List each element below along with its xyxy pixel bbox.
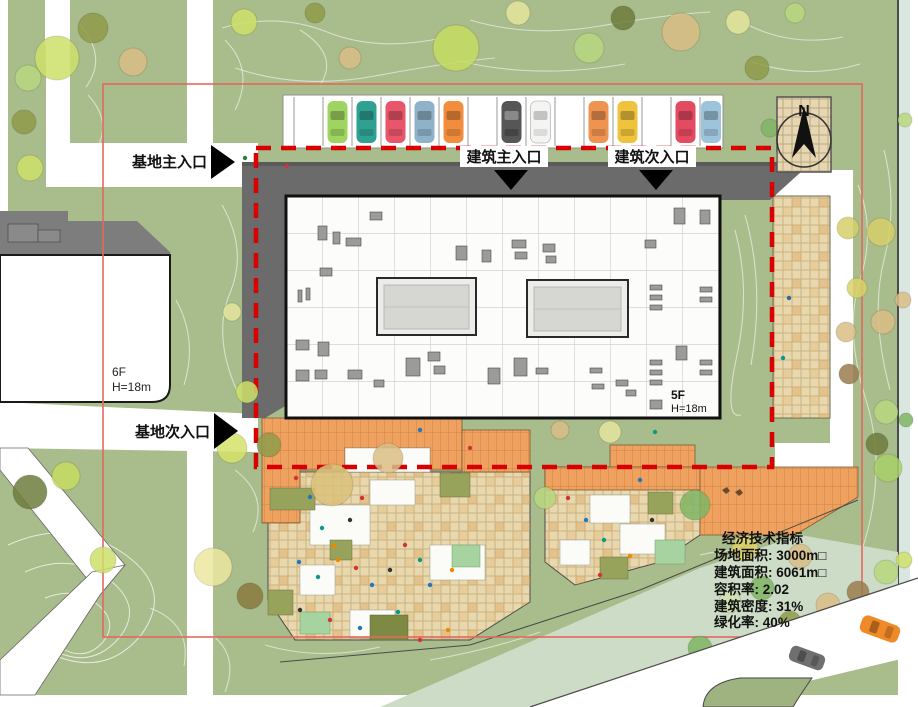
main-building-height: H=18m	[671, 403, 707, 415]
main-building: 5F H=18m	[286, 196, 720, 418]
label-building-secondary-entrance: 建筑次入口	[614, 148, 689, 166]
parked-car	[444, 101, 464, 143]
courtyard-skylight	[527, 280, 628, 337]
indicator-building-area: 建筑面积: 6061m□	[713, 564, 826, 580]
courtyard-skylight	[377, 278, 476, 335]
indicators-title: 经济技术指标	[722, 530, 803, 546]
parked-car	[676, 101, 696, 143]
indicator-green-ratio: 绿化率: 40%	[714, 614, 790, 630]
road-right-vertical	[830, 170, 853, 470]
site-plan-drawing: 6F H=18m	[0, 0, 918, 707]
label-site-secondary-entrance: 基地次入口	[134, 423, 210, 441]
site-plan: 6F H=18m	[0, 0, 918, 707]
main-building-floors: 5F	[671, 388, 685, 402]
parked-car	[589, 101, 609, 143]
adjacent-building: 6F H=18m	[0, 211, 170, 402]
parked-car	[618, 101, 638, 143]
parked-car	[531, 101, 551, 143]
parked-car	[328, 101, 348, 143]
parking-lot	[283, 95, 723, 148]
parked-car	[357, 101, 377, 143]
north-label: N	[798, 103, 810, 120]
indicator-far: 容积率: 2.02	[713, 581, 789, 597]
parked-car	[415, 101, 435, 143]
adjacent-building-height: H=18m	[112, 380, 151, 394]
adjacent-building-floors: 6F	[112, 365, 126, 379]
indicator-density: 建筑密度: 31%	[713, 598, 803, 614]
pedestrian-path-texture	[773, 196, 830, 418]
indicator-site-area: 场地面积: 3000m□	[714, 547, 826, 563]
label-building-main-entrance: 建筑主入口	[466, 148, 541, 166]
road-right-connector	[775, 443, 853, 467]
parked-car	[502, 101, 522, 143]
road-top-vertical	[187, 0, 213, 148]
parked-car	[701, 101, 721, 143]
parked-car	[386, 101, 406, 143]
label-site-main-entrance: 基地主入口	[131, 153, 207, 171]
north-compass: N	[777, 97, 831, 172]
